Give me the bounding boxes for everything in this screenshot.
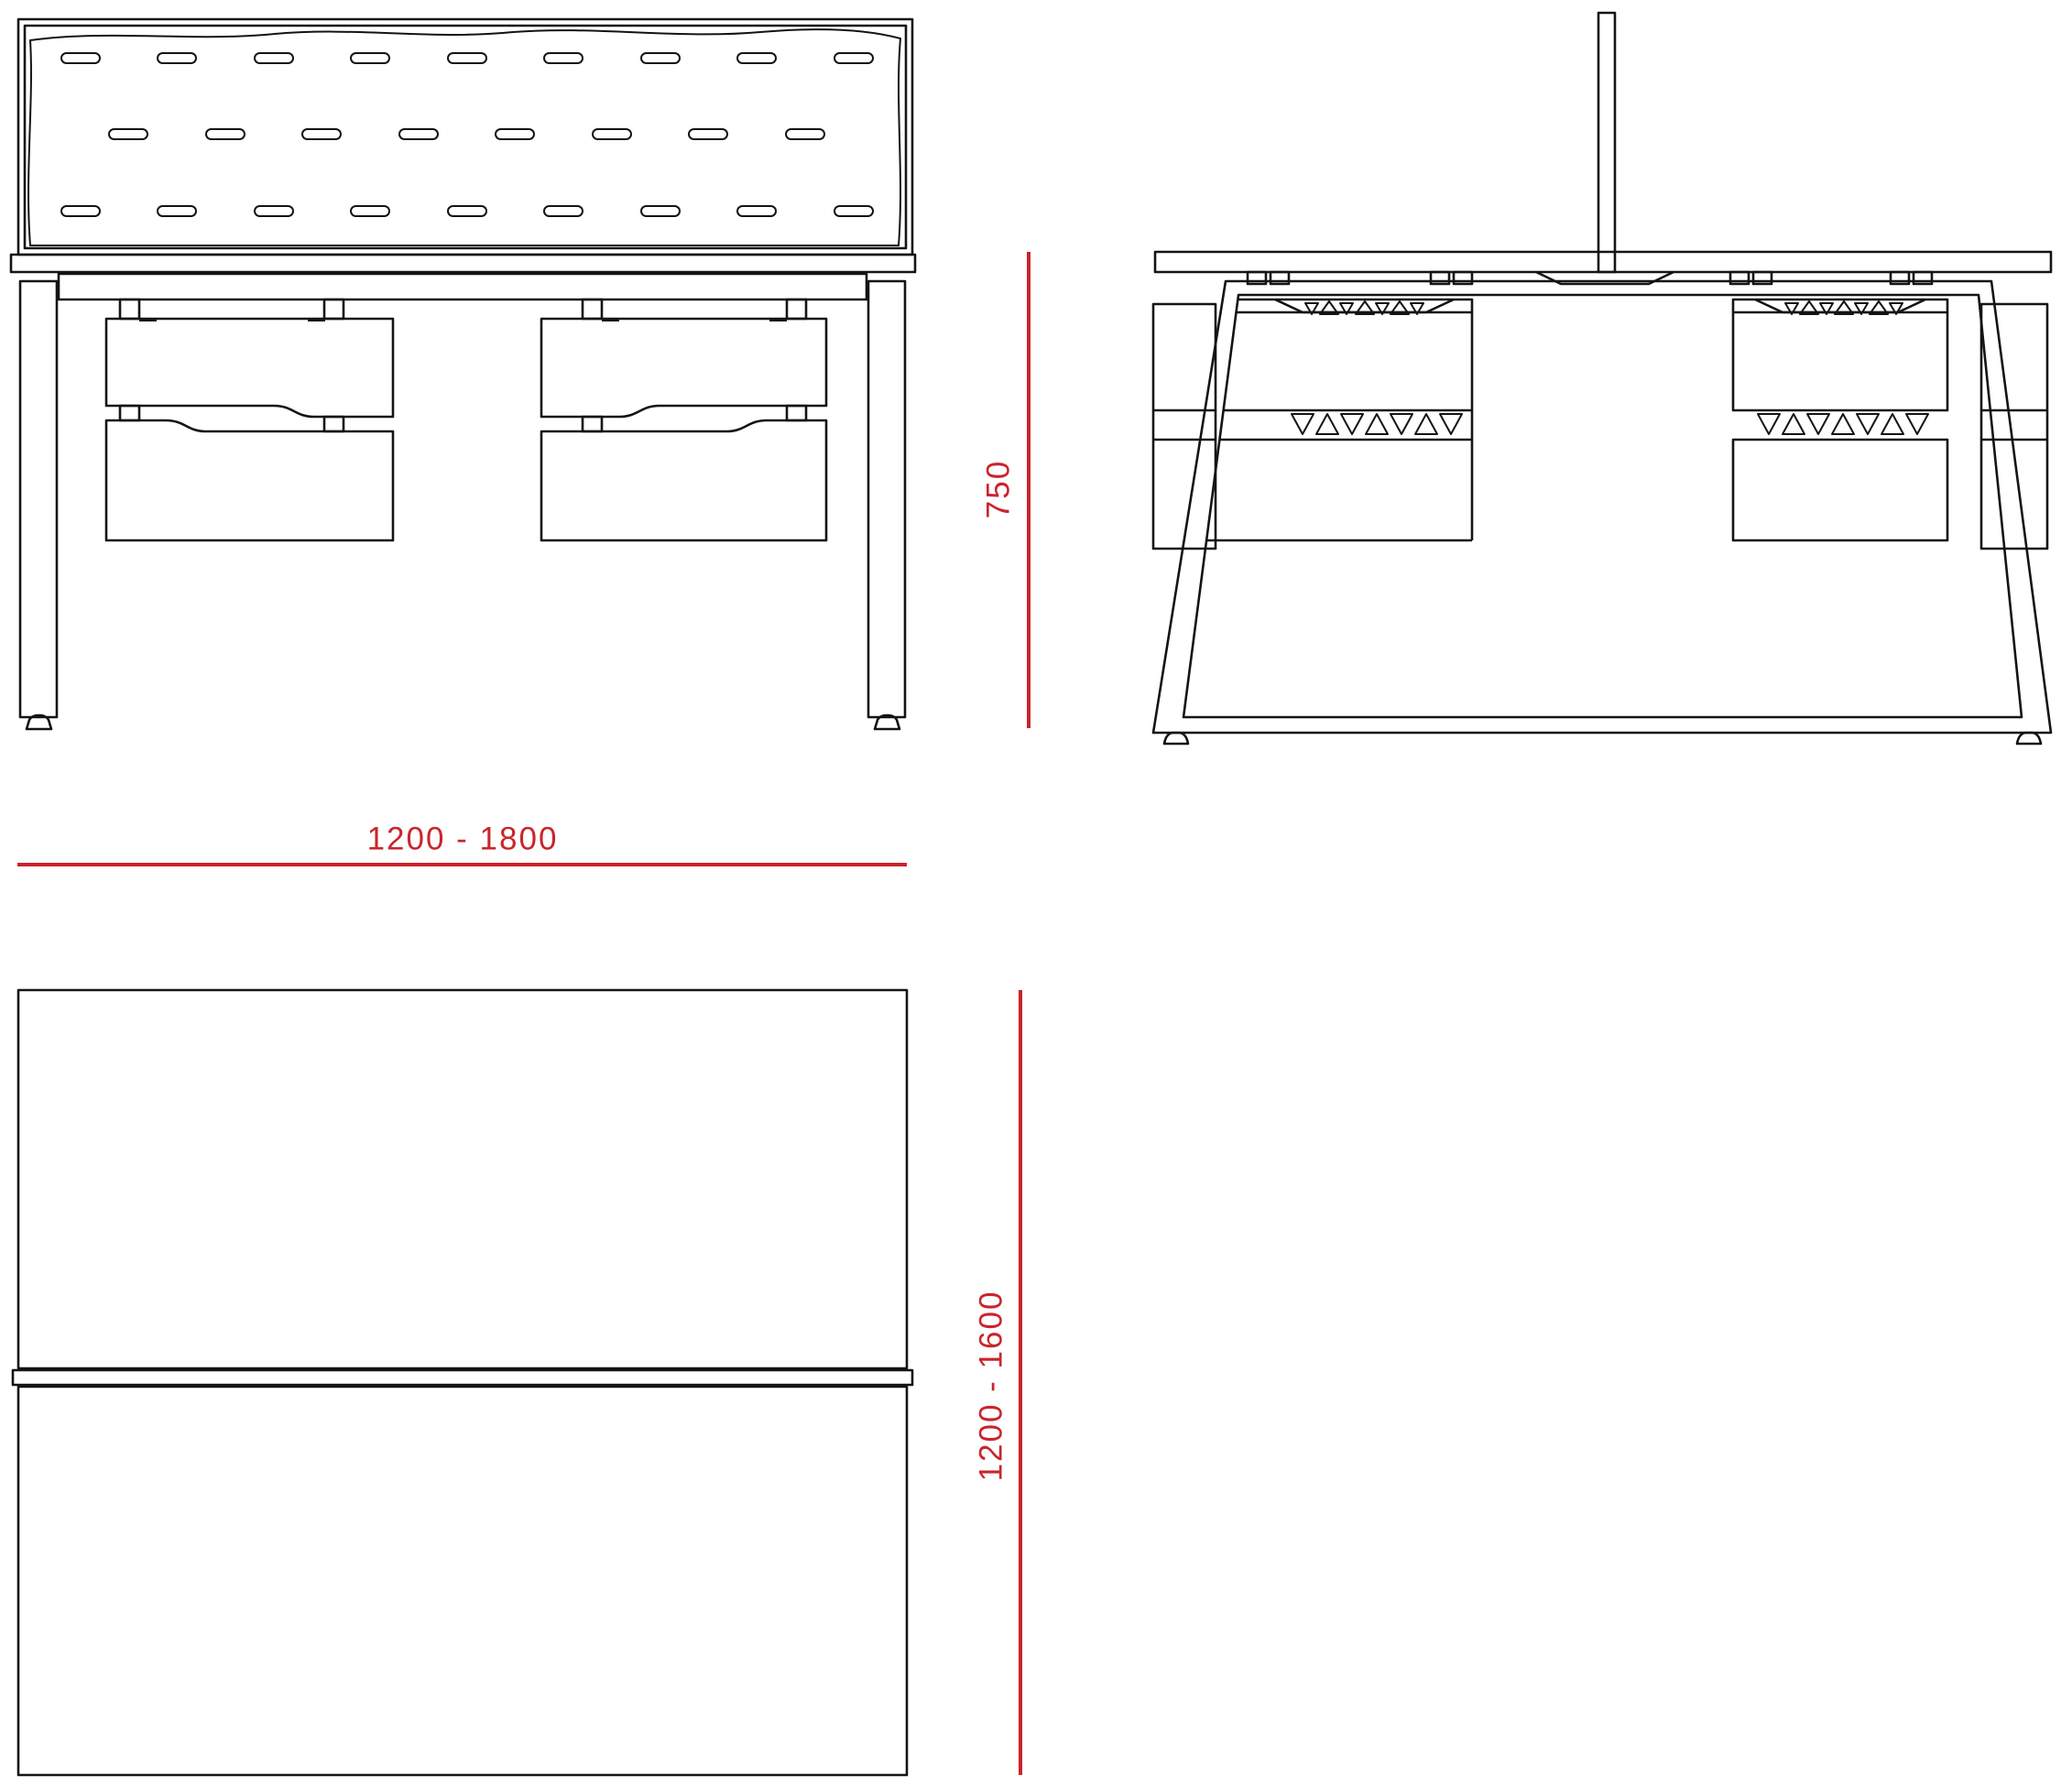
plan-view-drawing <box>0 971 925 1786</box>
right-leg <box>868 281 905 717</box>
divider-screen-edge <box>1598 13 1615 272</box>
plan-desktop-top <box>18 990 907 1368</box>
left-leg <box>20 281 57 717</box>
frame-outer <box>1153 281 2051 733</box>
width-dimension-line <box>17 863 907 866</box>
desktop-side <box>1155 252 2051 272</box>
support-beam <box>59 274 867 299</box>
depth-dimension-line <box>1019 990 1022 1775</box>
frame-inner <box>1183 295 2022 717</box>
left-pedestal-bottom-drawer <box>106 420 393 540</box>
depth-dimension-label: 1200 - 1600 <box>976 1290 1008 1482</box>
front-view-drawing <box>0 0 925 760</box>
plan-desktop-bottom <box>18 1387 907 1775</box>
left-end-panel <box>1153 304 1216 549</box>
left-pedestal-top-drawer <box>106 319 393 417</box>
screen-outer-frame <box>18 19 912 255</box>
side-left-foot <box>1164 733 1188 744</box>
right-pedestal-top-drawer <box>541 319 826 417</box>
height-dimension-label: 750 <box>983 460 1015 518</box>
height-dimension-line <box>1027 252 1031 728</box>
desktop-front <box>11 255 915 272</box>
side-right-foot <box>2017 733 2041 744</box>
side-view-drawing <box>1129 0 2054 760</box>
right-pedestal-bottom-drawer <box>541 420 826 540</box>
technical-drawing-sheet: 1200 - 1800 750 1200 - 1600 <box>0 0 2072 1786</box>
plan-divider-screen <box>13 1370 912 1385</box>
width-dimension-label: 1200 - 1800 <box>367 823 559 855</box>
